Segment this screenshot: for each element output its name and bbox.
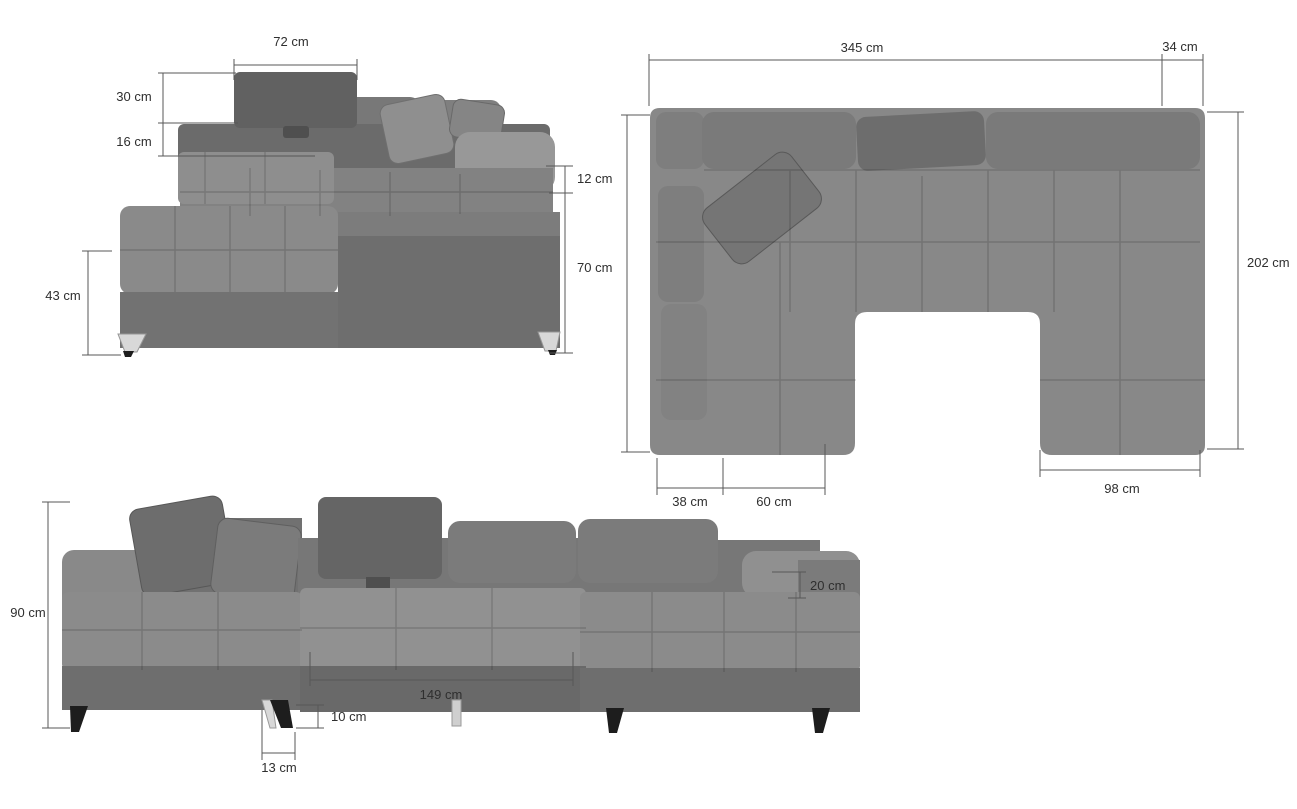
sofa-dimension-diagram: 72 cm 30 cm 16 cm 12 cm 70 cm 43 cm	[0, 0, 1297, 809]
dim-label-headrest-width: 72 cm	[273, 34, 308, 49]
side-view: 72 cm 30 cm 16 cm 12 cm 70 cm 43 cm	[45, 34, 612, 357]
diagram-svg: 72 cm 30 cm 16 cm 12 cm 70 cm 43 cm	[0, 0, 1297, 809]
left-arm-cushion	[658, 186, 704, 302]
top-view-sofa	[650, 108, 1205, 455]
measured-leg	[262, 700, 293, 728]
dim-label-leg-offset: 13 cm	[261, 760, 296, 775]
corner-headrest	[656, 112, 704, 169]
left-seat	[62, 592, 302, 670]
pillow	[210, 517, 303, 603]
front-view: 90 cm 20 cm 149 cm 10 cm 13 cm	[10, 495, 860, 775]
headrest	[234, 72, 357, 128]
dim-label-leg-height: 10 cm	[331, 709, 366, 724]
dim-armrest-width: 34 cm	[1162, 39, 1203, 106]
dim-label-total-width: 345 cm	[841, 40, 884, 55]
black-leg	[70, 706, 88, 732]
raised-headrest	[318, 497, 442, 579]
seat-left-section	[178, 152, 334, 204]
dim-right-section-width: 98 cm	[1040, 450, 1200, 496]
dim-label-left-seat-width: 60 cm	[756, 494, 791, 509]
base-top-roll	[338, 212, 560, 236]
pillow	[378, 93, 455, 165]
top-view: 345 cm 34 cm 202 cm 38 cm 60 cm 98 cm	[621, 39, 1290, 509]
dim-label-total-height: 90 cm	[10, 605, 45, 620]
dim-label-armrest-width: 34 cm	[1162, 39, 1197, 54]
dim-label-chaise-height: 43 cm	[45, 288, 80, 303]
black-leg	[606, 708, 624, 733]
dim-label-base-height: 70 cm	[577, 260, 612, 275]
left-arm-cushion	[661, 304, 707, 420]
dim-headrest-height: 30 cm	[116, 73, 238, 123]
chrome-leg	[452, 700, 461, 726]
dim-total-depth: 202 cm	[1207, 112, 1290, 449]
dim-chaise-height: 43 cm	[45, 251, 121, 355]
headrest-support	[366, 577, 390, 589]
black-leg	[812, 708, 830, 733]
headrest	[578, 519, 718, 583]
dim-label-headrest-support: 16 cm	[116, 134, 151, 149]
dim-total-height: 90 cm	[10, 502, 70, 728]
right-base	[580, 668, 860, 712]
dim-label-armrest-thickness: 12 cm	[577, 171, 612, 186]
dim-armrest-thickness: 12 cm	[546, 166, 612, 193]
tilted-headrest	[856, 111, 987, 172]
headrest-strip	[986, 112, 1200, 169]
center-seat	[300, 588, 586, 670]
headrest-support	[283, 126, 309, 138]
dim-label-left-arm-width: 38 cm	[672, 494, 707, 509]
dim-label-right-section-width: 98 cm	[1104, 481, 1139, 496]
dim-label-center-seat-width: 149 cm	[420, 687, 463, 702]
chaise-front	[120, 292, 338, 348]
dim-label-armrest-pad-height: 20 cm	[810, 578, 845, 593]
dim-label-headrest-height: 30 cm	[116, 89, 151, 104]
side-view-sofa	[118, 72, 560, 357]
dim-label-total-depth: 202 cm	[1247, 255, 1290, 270]
dim-left-depth-line	[621, 115, 650, 452]
dim-total-width: 345 cm	[649, 40, 1162, 106]
headrest	[448, 521, 576, 583]
